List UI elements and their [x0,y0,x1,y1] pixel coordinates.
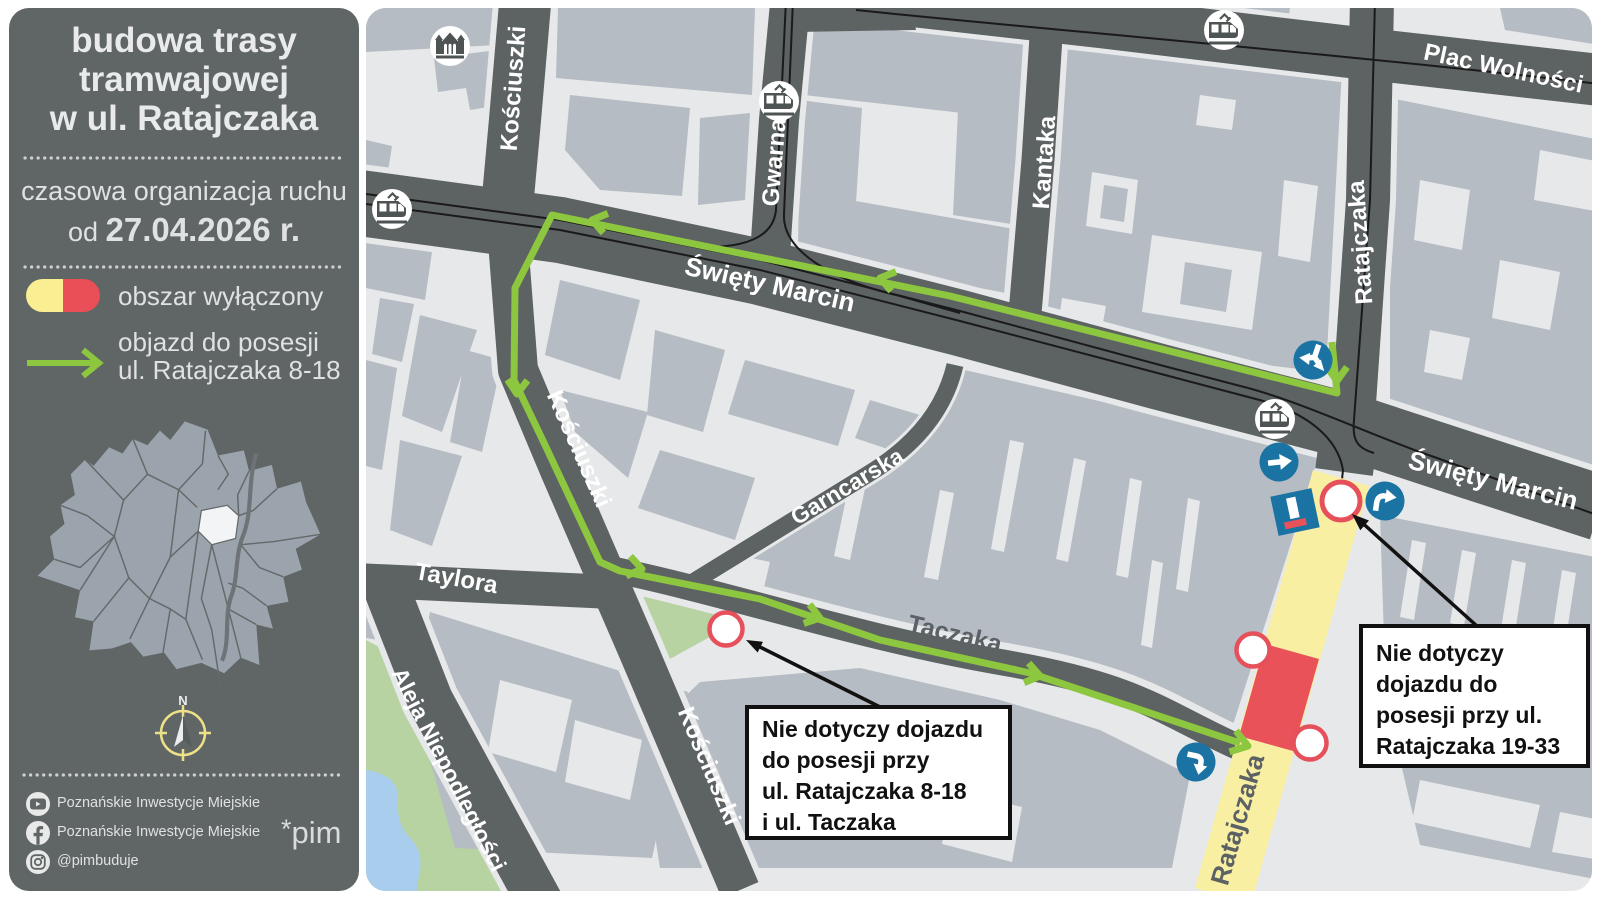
svg-text:posesji przy ul.: posesji przy ul. [1376,702,1542,728]
svg-text:dojazdu do: dojazdu do [1376,671,1497,697]
svg-text:Ratajczaka 19-33: Ratajczaka 19-33 [1376,733,1560,759]
svg-text:do posesji przy: do posesji przy [762,747,930,773]
svg-text:Nie dotyczy dojazdu: Nie dotyczy dojazdu [762,716,983,742]
svg-text:i ul. Taczaka: i ul. Taczaka [762,809,896,835]
svg-text:ul. Ratajczaka 8-18: ul. Ratajczaka 8-18 [762,778,967,804]
svg-text:Nie dotyczy: Nie dotyczy [1376,640,1504,666]
